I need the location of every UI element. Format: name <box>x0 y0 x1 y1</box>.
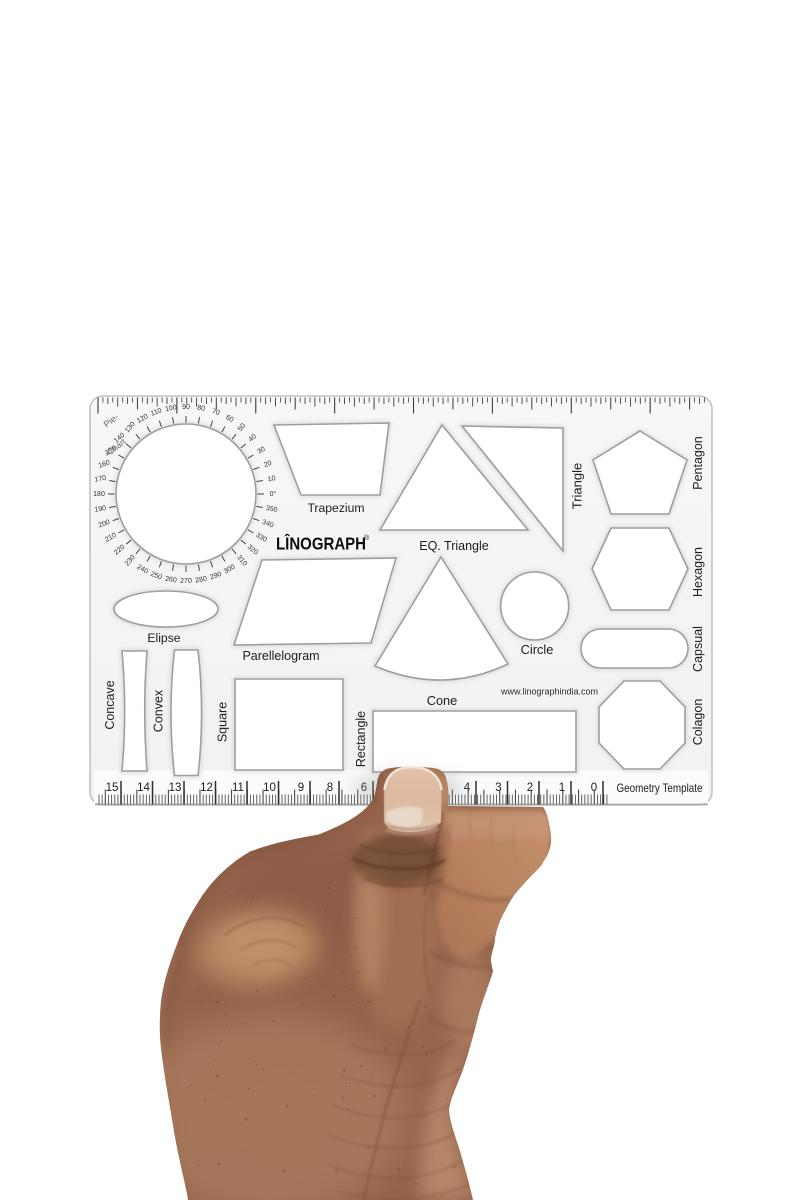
svg-text:11: 11 <box>232 782 244 794</box>
svg-text:13: 13 <box>169 782 182 794</box>
svg-text:180: 180 <box>93 491 105 498</box>
svg-text:0°: 0° <box>270 490 277 498</box>
svg-text:Circle: Circle <box>521 642 554 657</box>
svg-text:Rectangle: Rectangle <box>354 711 368 767</box>
svg-text:80: 80 <box>197 405 206 413</box>
svg-text:8: 8 <box>327 782 333 794</box>
svg-text:Geometry Template: Geometry Template <box>617 781 703 795</box>
svg-text:LÎNOGRAPH: LÎNOGRAPH <box>276 533 366 554</box>
svg-text:Hexagon: Hexagon <box>691 547 705 597</box>
svg-text:Cone: Cone <box>427 693 458 708</box>
svg-text:3: 3 <box>495 782 501 794</box>
svg-text:15: 15 <box>106 782 119 794</box>
svg-text:90: 90 <box>182 404 190 411</box>
svg-text:14: 14 <box>137 782 150 794</box>
svg-text:270: 270 <box>180 578 192 585</box>
svg-text:Parellelogram: Parellelogram <box>242 649 319 663</box>
svg-text:Convex: Convex <box>151 689 165 732</box>
svg-text:EQ. Triangle: EQ. Triangle <box>419 539 489 553</box>
svg-text:Elipse: Elipse <box>147 631 180 645</box>
svg-text:Triangle: Triangle <box>569 463 584 509</box>
svg-text:Concave: Concave <box>103 680 117 729</box>
svg-text:10: 10 <box>263 782 276 794</box>
svg-text:www.linographindia.com: www.linographindia.com <box>500 687 598 697</box>
svg-text:Colagon: Colagon <box>691 699 705 746</box>
svg-text:0: 0 <box>591 782 597 794</box>
svg-text:2: 2 <box>527 782 533 794</box>
svg-text:4: 4 <box>464 782 471 794</box>
svg-text:10: 10 <box>267 475 276 483</box>
svg-text:12: 12 <box>200 782 213 794</box>
svg-text:9: 9 <box>298 782 304 794</box>
svg-text:Trapezium: Trapezium <box>307 501 364 515</box>
svg-text:Capsual: Capsual <box>691 626 705 672</box>
svg-text:®: ® <box>364 534 370 542</box>
svg-text:Square: Square <box>215 702 229 742</box>
svg-text:1: 1 <box>559 782 565 794</box>
svg-text:Pentagon: Pentagon <box>691 436 705 490</box>
